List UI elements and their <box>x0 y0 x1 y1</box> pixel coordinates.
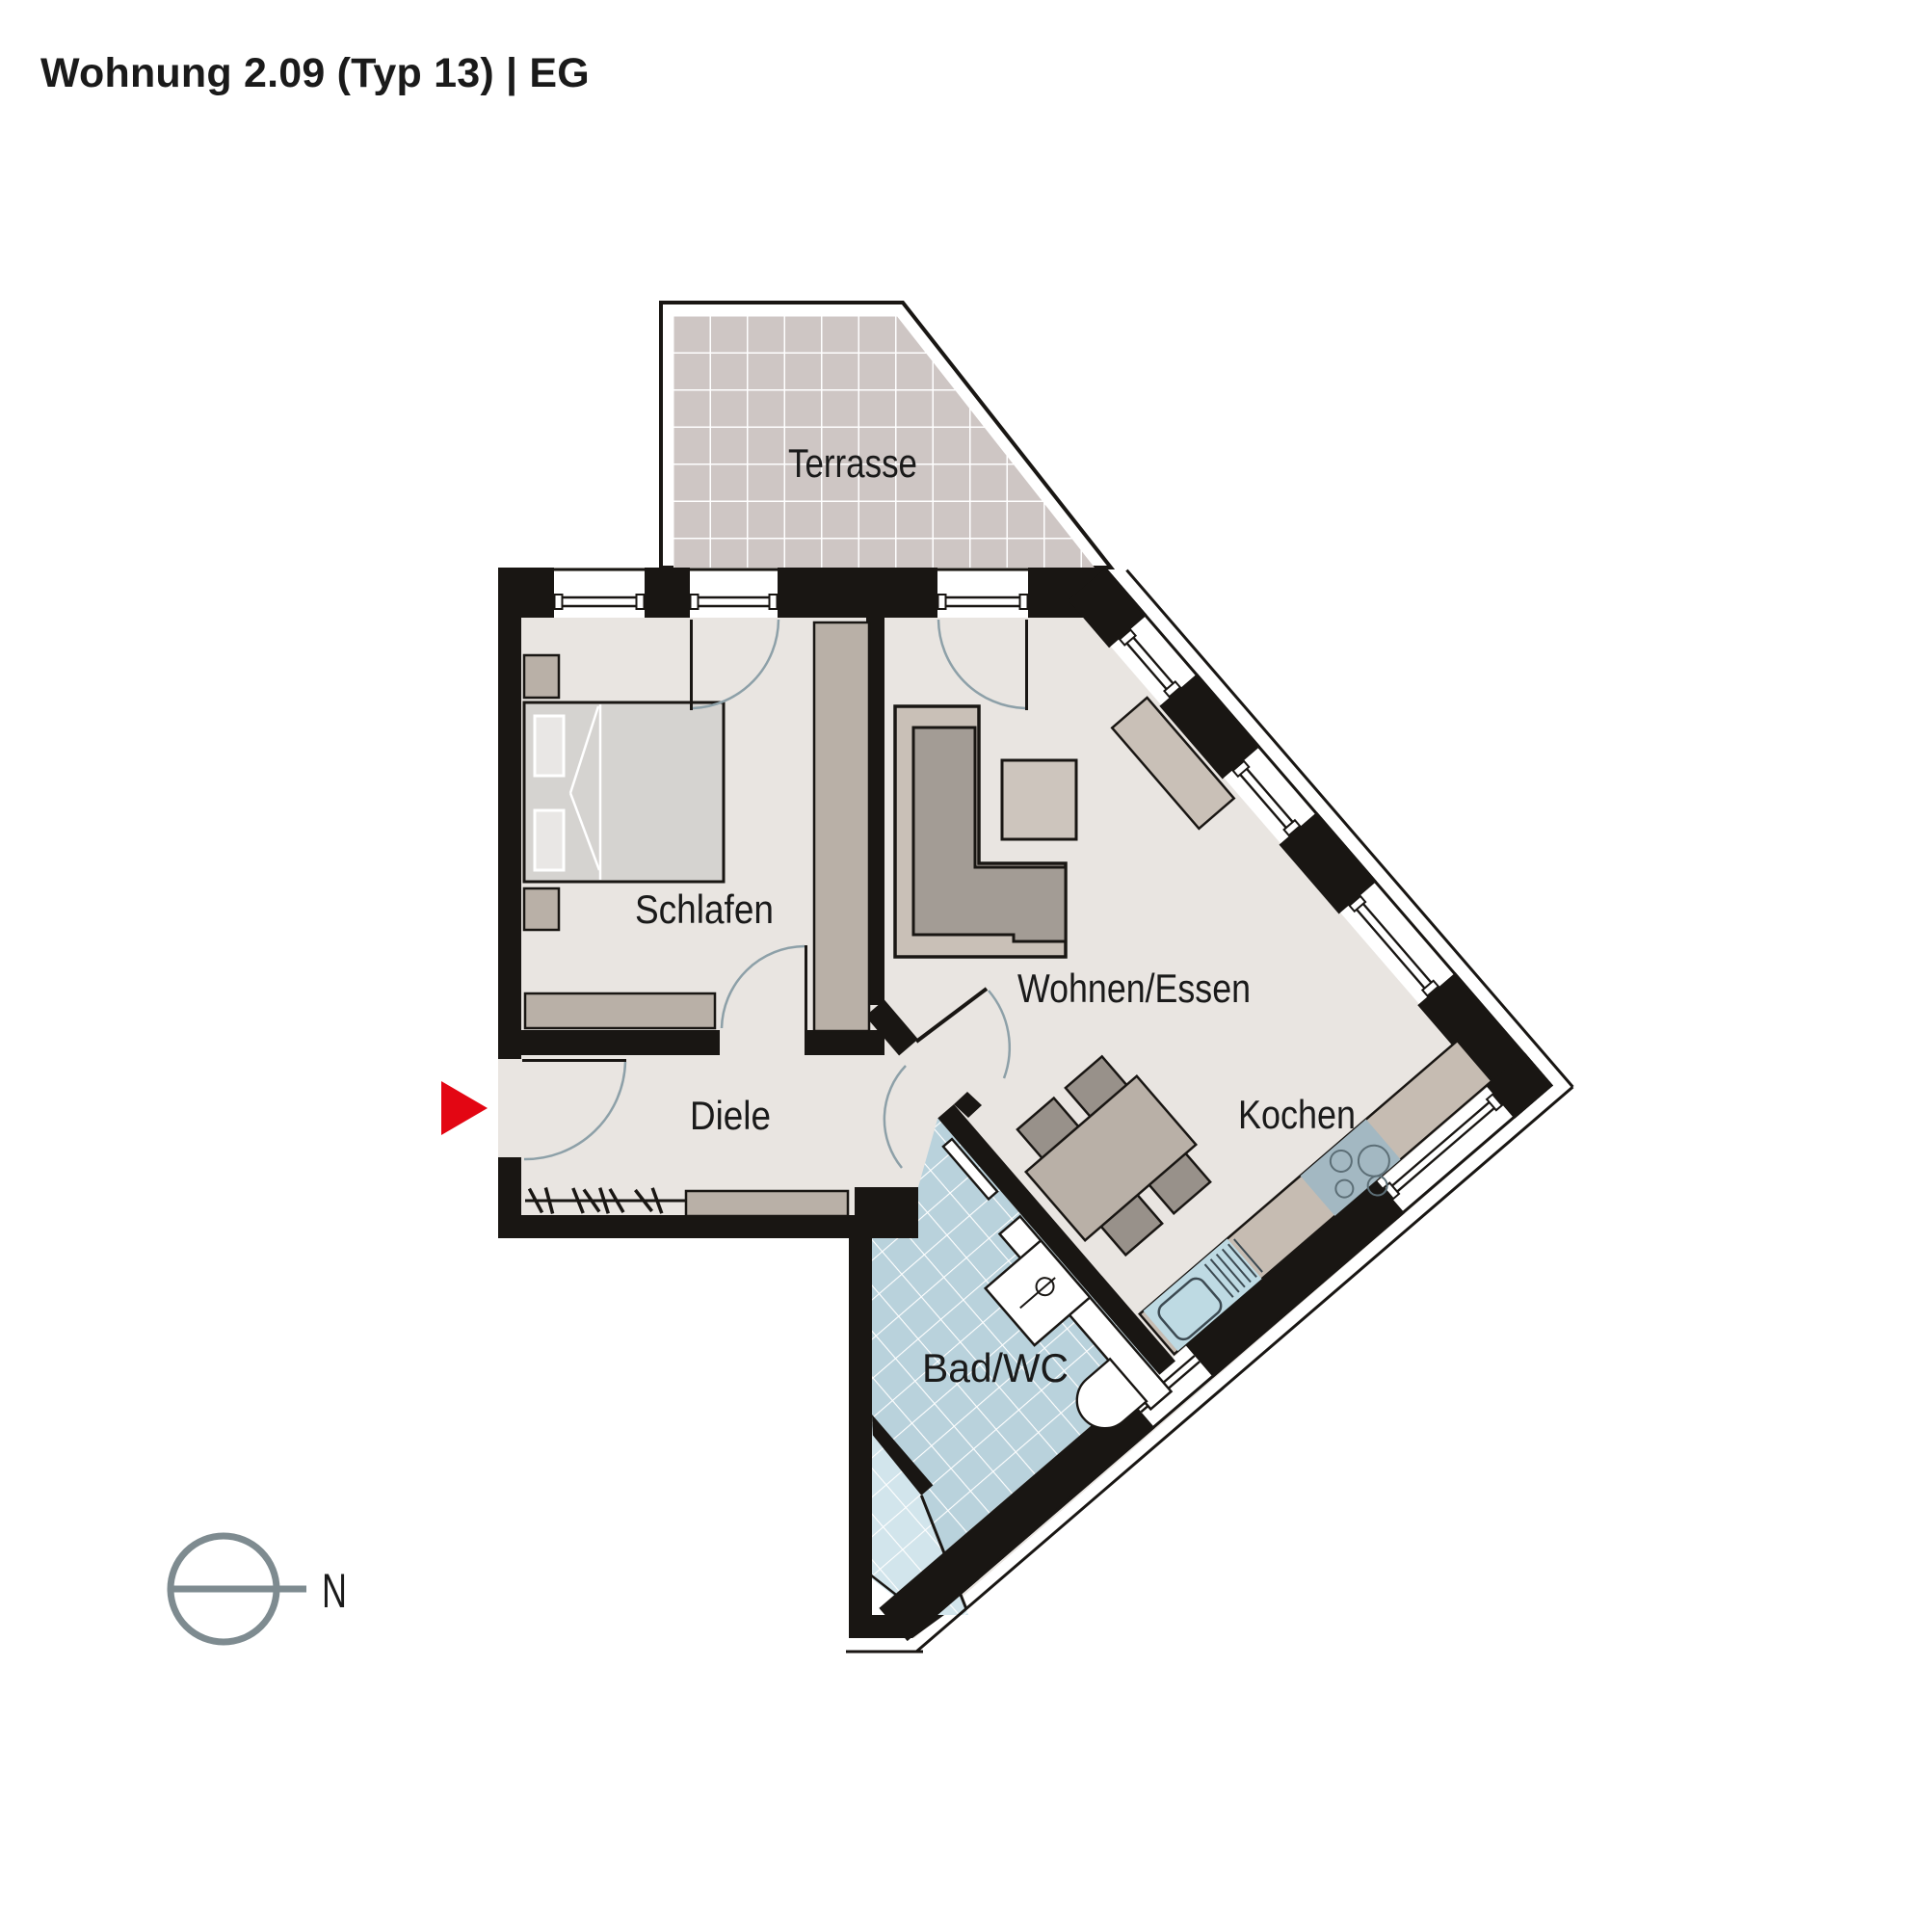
svg-text:Diele: Diele <box>690 1093 771 1138</box>
svg-text:Wohnung 2.09 (Typ 13) | EG: Wohnung 2.09 (Typ 13) | EG <box>40 50 590 96</box>
svg-text:Schlafen: Schlafen <box>635 887 774 932</box>
svg-text:Kochen: Kochen <box>1238 1092 1356 1137</box>
svg-text:N: N <box>322 1564 347 1618</box>
svg-text:Bad/WC: Bad/WC <box>922 1345 1069 1390</box>
svg-text:Terrasse: Terrasse <box>788 440 917 486</box>
svg-text:Wohnen/Essen: Wohnen/Essen <box>1017 966 1251 1011</box>
